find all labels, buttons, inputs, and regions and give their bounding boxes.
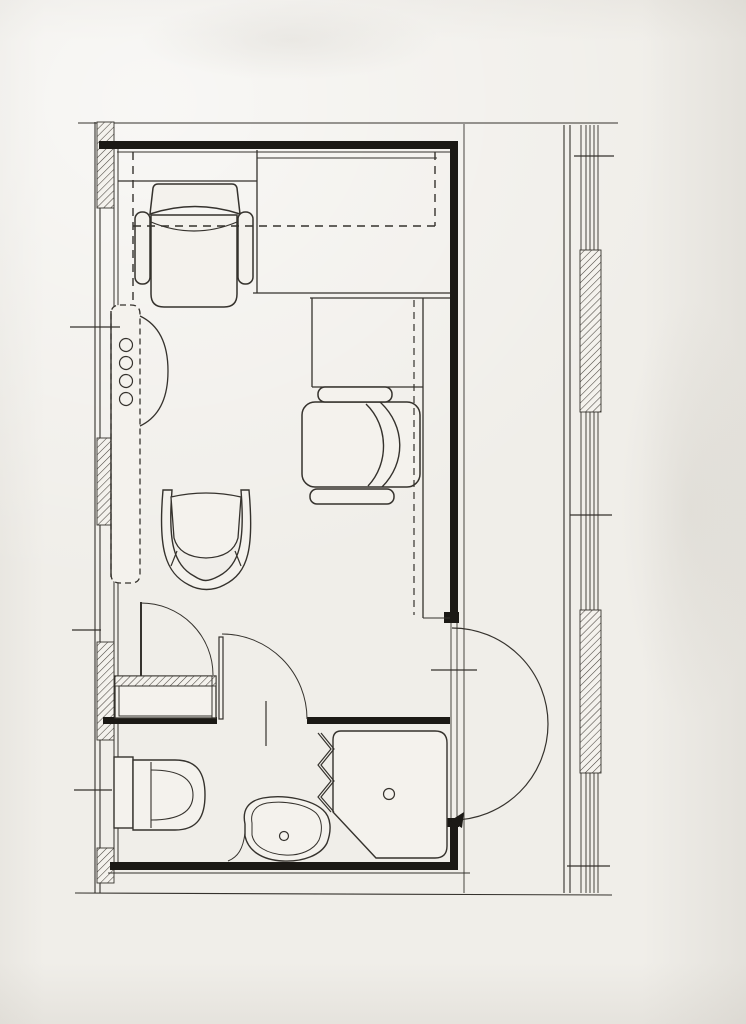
wardrobe-knob-1 [120,339,133,352]
wardrobe-knob-4 [120,393,133,406]
entry-door-arc [452,628,548,820]
bottom-wall [110,862,458,870]
toilet-bowl [133,760,205,830]
bathroom-door-arc [222,634,307,719]
closet-shelf-hatch [115,676,216,686]
wardrobe-knob-3 [120,375,133,388]
armchair-top-armrest-right [238,212,253,284]
left-facade-pier-3 [97,642,114,740]
shower-pan [333,731,447,858]
plan-layers [70,122,618,895]
right-facade-pier-1 [580,250,601,412]
armchair-top-seat [151,215,237,307]
armchair-desk-body [302,402,420,487]
bottom-boundary-line [75,893,612,895]
top-wall [99,141,458,149]
washbasin-wall-curve [228,833,245,861]
armchair-desk-armrest-bottom [310,489,394,504]
bathroom-door-leaf [219,637,223,719]
left-facade-pier-1 [97,122,114,208]
right-facade-pier-2 [580,610,601,773]
washbasin-outer [244,797,330,861]
desk-chair-seat [171,493,241,558]
toilet-tank [114,757,133,828]
bathroom-wall-right [307,717,450,724]
armchair-top-back [150,184,240,214]
wardrobe-swing-arc [140,316,168,426]
scanned-floorplan-page [0,0,746,1024]
wardrobe-knob-2 [120,357,133,370]
armchair-desk-armrest-top [318,387,392,402]
closet-door-arc [141,603,213,675]
floor-plan-drawing [0,0,746,1024]
right-wall-upper [450,141,458,623]
armchair-top-armrest-left [135,212,150,284]
